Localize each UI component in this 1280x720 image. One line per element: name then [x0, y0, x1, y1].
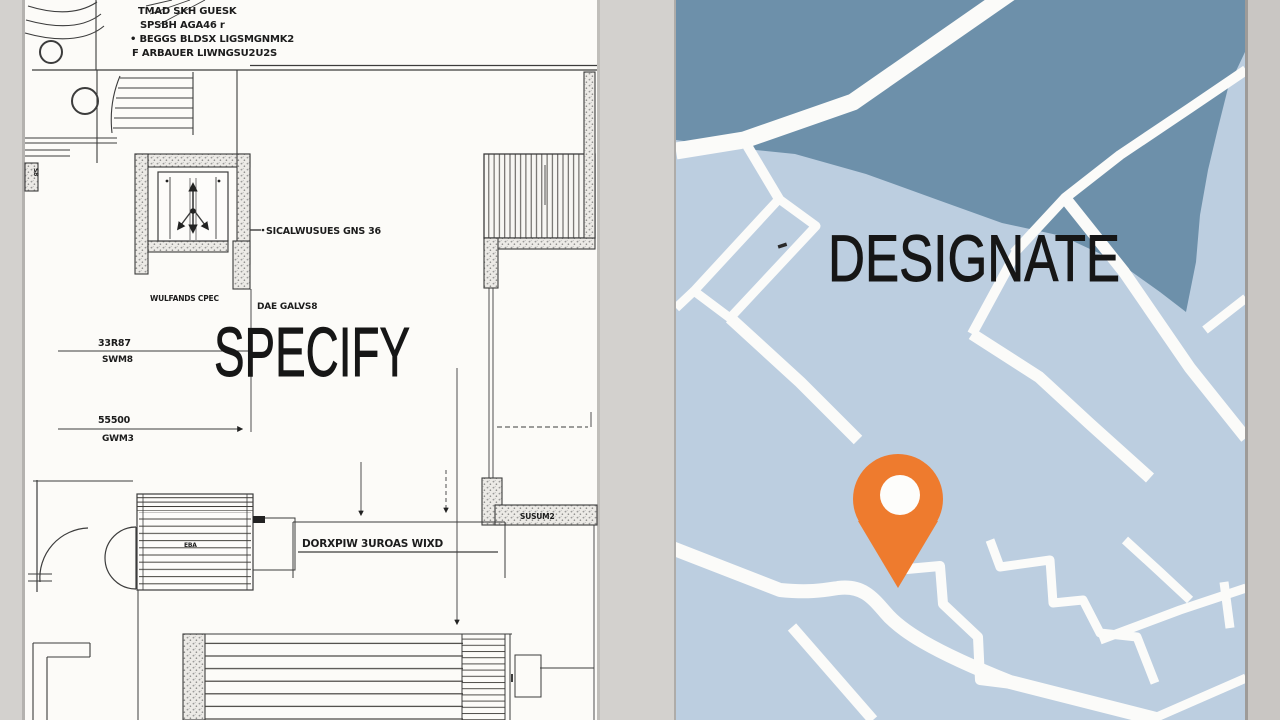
note-line: • BEGGS BLDSX LIGSMGNMK2 [130, 34, 294, 45]
core-leader-label: SICALWUSUES GNS 36 [266, 226, 382, 237]
left-panel-title: SPECIFY [214, 313, 410, 391]
note-line: TMAD SKH GUESK [138, 6, 238, 17]
map-left-shadow [674, 0, 676, 720]
map-right-shadow [1245, 0, 1248, 720]
core-under-label: WULFANDS CPEC [150, 294, 219, 303]
dim2-value: 55500 [98, 415, 131, 426]
scene: TMAD SKH GUESK SPSBH AGA46 r • BEGGS BLD… [0, 0, 1280, 720]
two-panel-illustration: TMAD SKH GUESK SPSBH AGA46 r • BEGGS BLD… [0, 0, 1280, 720]
right-panel-title: DESIGNATE [828, 221, 1120, 295]
wall-note: SUSUM2 [520, 512, 554, 521]
pin-hole [880, 475, 920, 515]
dim1-value: 33R87 [98, 338, 131, 349]
right-margin [1248, 0, 1280, 720]
room-note: DORXPIW 3UROAS WIXD [302, 538, 444, 550]
note-line: F ARBAUER LIWNGSU2U2S [132, 48, 277, 59]
note-line: SPSBH AGA46 r [140, 20, 225, 31]
page-right-shadow [597, 0, 600, 720]
galv-label: DAE GALVS8 [257, 302, 317, 312]
dim1-sub: SWM8 [102, 355, 133, 365]
map-panel: DESIGNATE [672, 0, 1246, 720]
edge-note: S8 [32, 168, 39, 176]
stair-note: EBA [184, 542, 197, 549]
dim2-sub: GWM3 [102, 434, 134, 444]
